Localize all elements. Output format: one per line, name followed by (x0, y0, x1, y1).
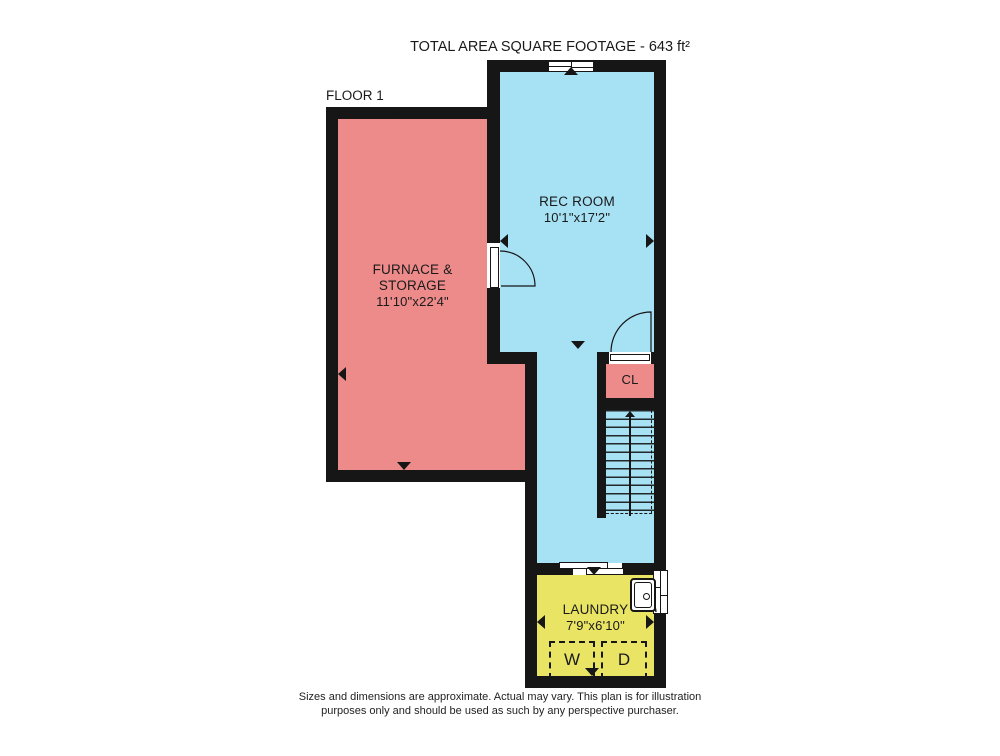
closet-door-leaf (610, 354, 650, 361)
direction-arrow-icon (646, 234, 654, 248)
dryer-box: D (601, 641, 647, 679)
laundry-room-label: LAUNDRY 7'9"x6'10" (537, 602, 654, 634)
disclaimer: Sizes and dimensions are approximate. Ac… (0, 691, 1000, 718)
direction-arrow-icon (585, 668, 599, 676)
disclaimer-line1: Sizes and dimensions are approximate. Ac… (0, 691, 1000, 705)
furnace-storage-area-lower (338, 364, 525, 470)
window-pane (661, 571, 667, 613)
direction-arrow-icon (391, 111, 405, 119)
wall (487, 60, 500, 243)
floor-plan: TOTAL AREA SQUARE FOOTAGE - 643 ft² FLOO… (0, 0, 1000, 756)
direction-arrow-icon (500, 234, 508, 248)
room-dims: 7'9"x6'10" (537, 618, 654, 634)
direction-arrow-icon (571, 341, 585, 349)
total-area-title: TOTAL AREA SQUARE FOOTAGE - 643 ft² (100, 39, 1000, 55)
wall (326, 470, 537, 482)
closet-label: CL (606, 372, 654, 388)
rec-room-label: REC ROOM 10'1"x17'2" (500, 194, 654, 226)
furnace-room-label: FURNACE & STORAGE 11'10"x22'4" (338, 262, 487, 310)
direction-arrow-icon (338, 367, 346, 381)
wall (525, 352, 537, 688)
stairs-direction-line (629, 417, 631, 516)
direction-arrow-icon (564, 67, 578, 75)
disclaimer-line2: purposes only and should be used as such… (0, 705, 1000, 719)
stairs-up-arrow-icon (625, 411, 635, 417)
direction-arrow-icon (397, 462, 411, 470)
wall (487, 352, 525, 364)
wall (597, 398, 666, 410)
washer-label: W (564, 650, 580, 670)
floor-label: FLOOR 1 (326, 88, 384, 103)
direction-arrow-icon (587, 567, 601, 575)
wall (597, 410, 606, 518)
room-name: FURNACE & STORAGE (338, 262, 487, 294)
room-name: LAUNDRY (537, 602, 654, 618)
wall (326, 107, 500, 119)
room-dims: 10'1"x17'2" (500, 210, 654, 226)
door-leaf (490, 247, 499, 288)
room-name: REC ROOM (500, 194, 654, 210)
wall (326, 107, 338, 482)
room-dims: 11'10"x22'4" (338, 294, 487, 310)
dryer-label: D (618, 650, 630, 670)
sink-drain (643, 593, 650, 600)
